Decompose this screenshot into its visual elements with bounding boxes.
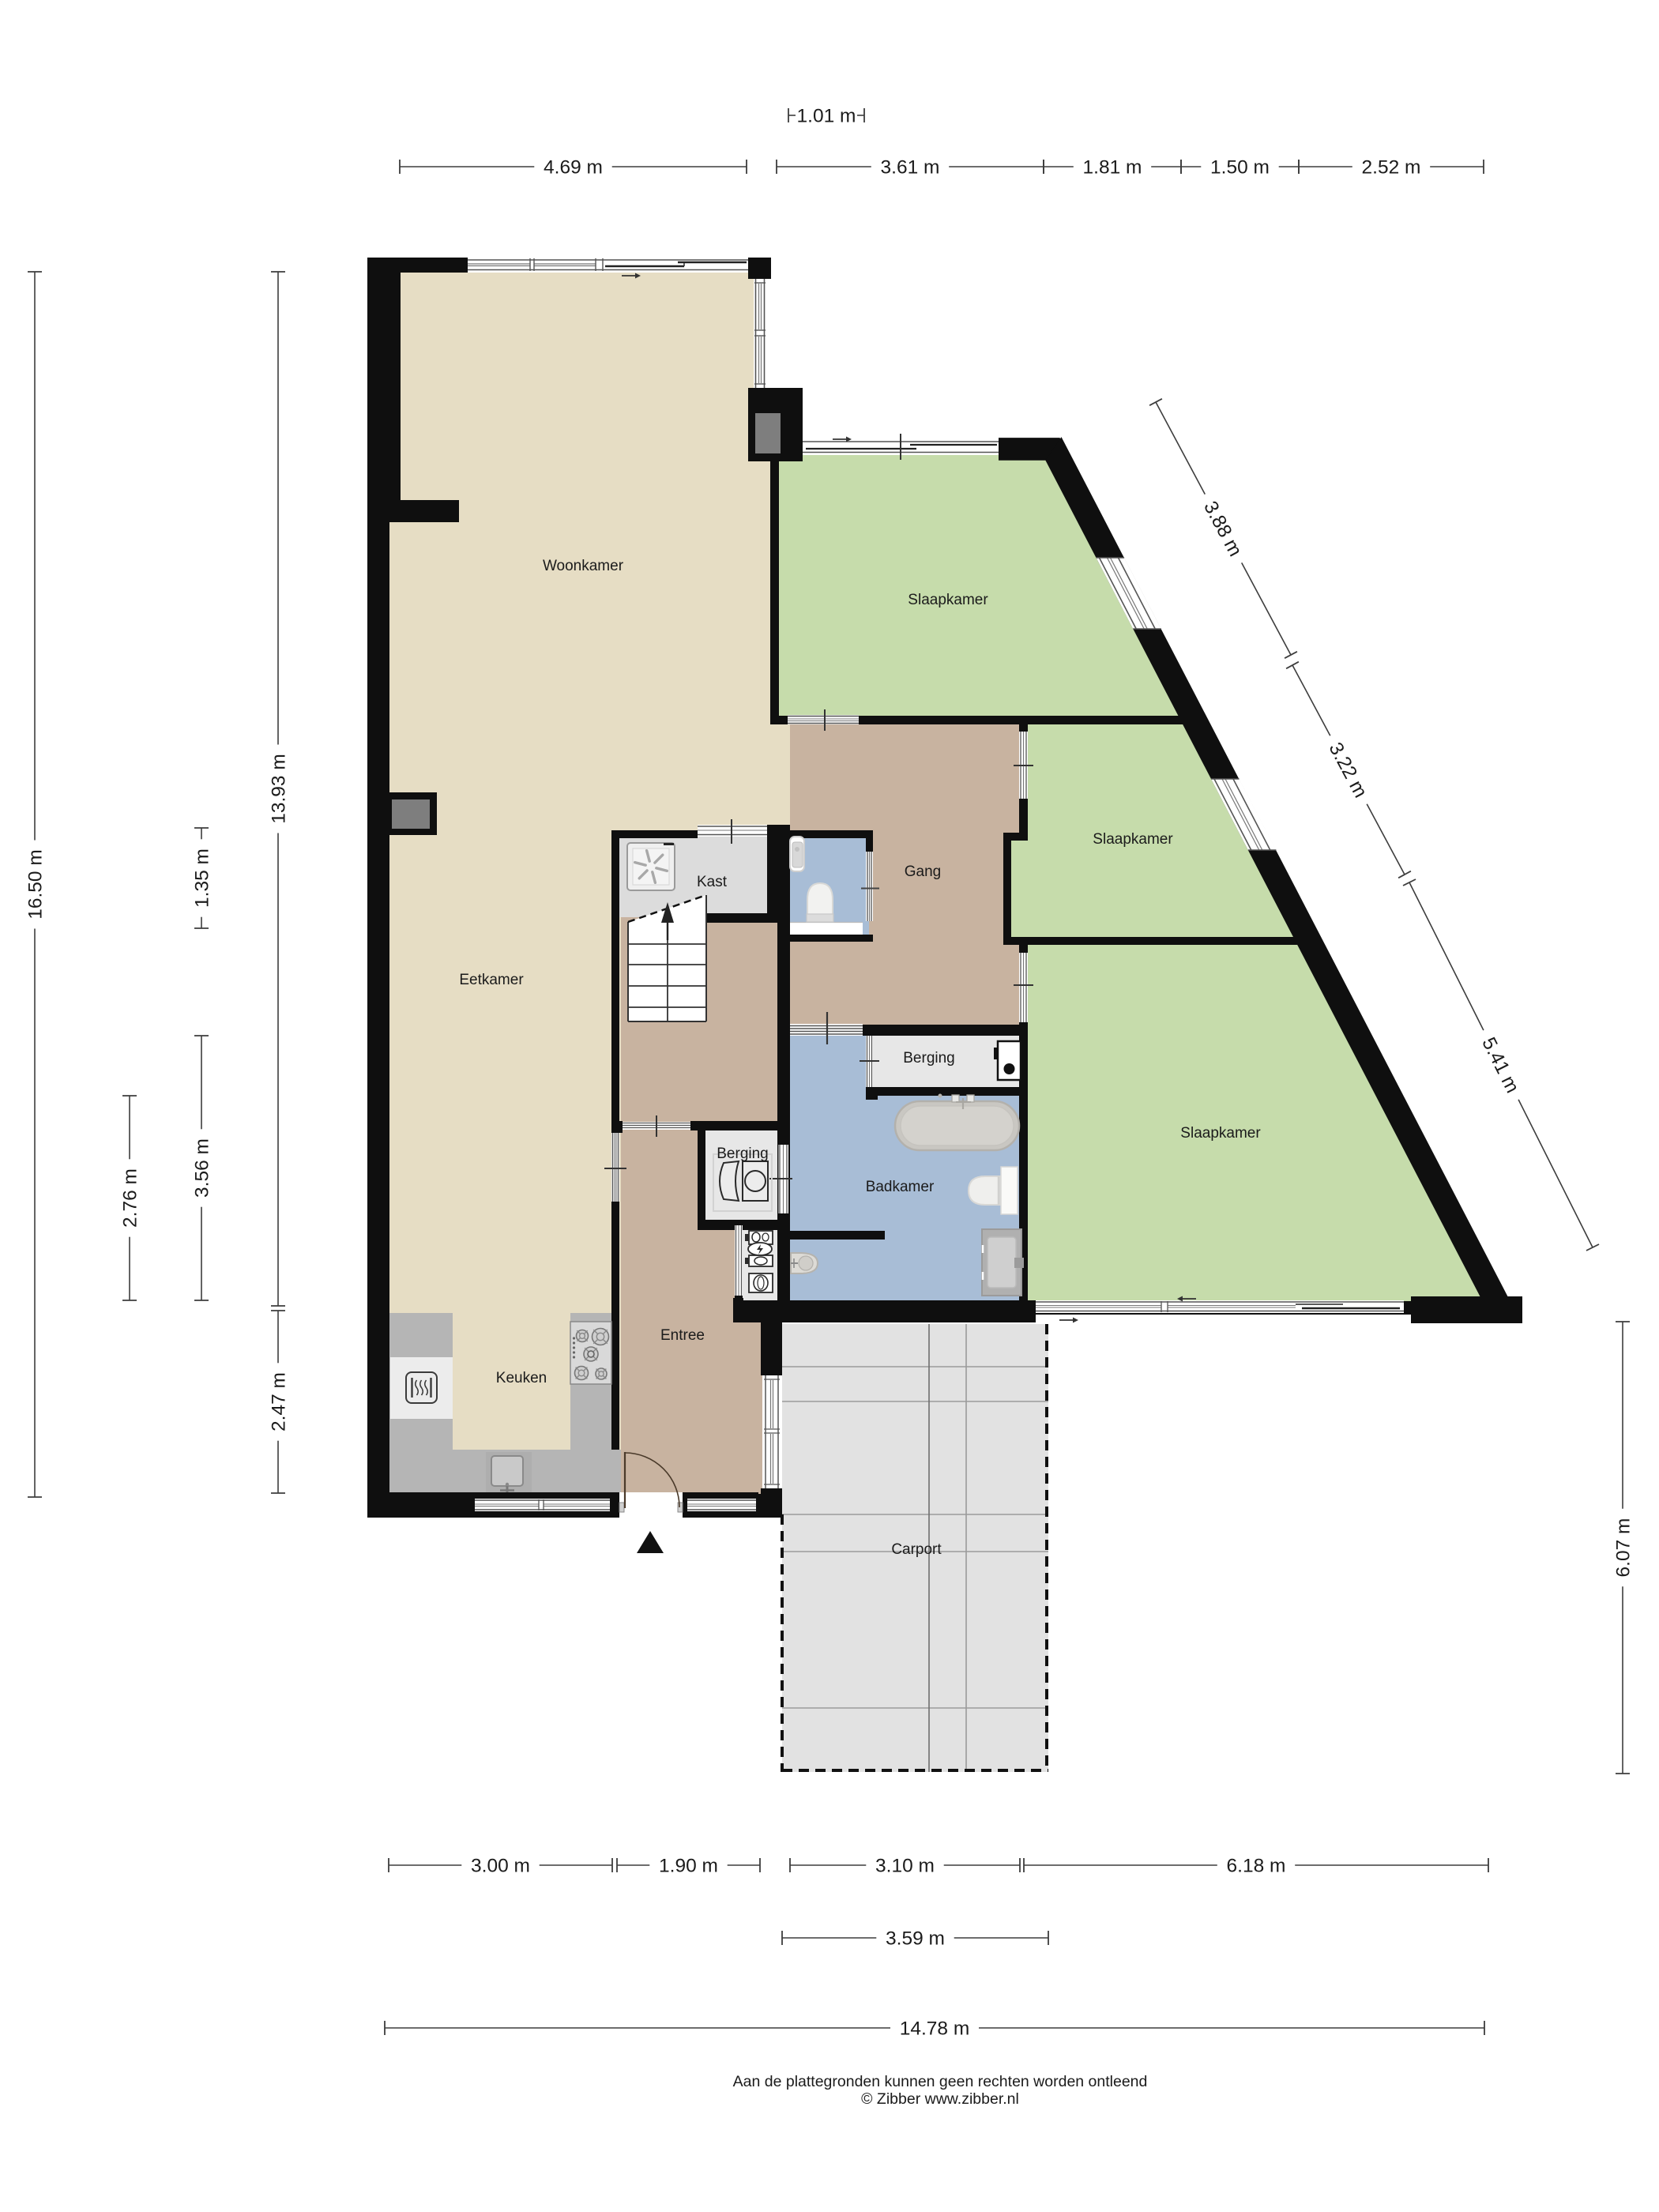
svg-text:Slaapkamer: Slaapkamer [1093, 831, 1173, 848]
svg-text:16.50 m: 16.50 m [24, 849, 46, 920]
svg-text:2.47 m: 2.47 m [268, 1372, 289, 1431]
svg-text:Eetkamer: Eetkamer [459, 972, 524, 988]
svg-text:13.93 m: 13.93 m [268, 754, 289, 824]
svg-text:6.07 m: 6.07 m [1612, 1518, 1634, 1578]
svg-text:3.00 m: 3.00 m [471, 1855, 530, 1876]
svg-text:3.59 m: 3.59 m [886, 1928, 945, 1949]
svg-text:14.78 m: 14.78 m [900, 2018, 970, 2039]
svg-text:© Zibber www.zibber.nl: © Zibber www.zibber.nl [861, 2090, 1019, 2108]
svg-text:Woonkamer: Woonkamer [543, 558, 624, 574]
svg-text:2.52 m: 2.52 m [1362, 156, 1421, 178]
svg-text:3.56 m: 3.56 m [191, 1138, 213, 1198]
svg-text:Badkamer: Badkamer [866, 1179, 935, 1195]
svg-text:Entree: Entree [660, 1327, 705, 1344]
svg-text:Berging: Berging [717, 1145, 769, 1162]
svg-text:Keuken: Keuken [496, 1370, 547, 1386]
svg-text:2.76 m: 2.76 m [119, 1168, 141, 1228]
svg-text:Aan de plattegronden kunnen ge: Aan de plattegronden kunnen geen rechten… [733, 2073, 1148, 2090]
svg-text:6.18 m: 6.18 m [1227, 1855, 1286, 1876]
svg-text:4.69 m: 4.69 m [544, 156, 603, 178]
svg-text:1.50 m: 1.50 m [1210, 156, 1270, 178]
svg-text:Carport: Carport [891, 1541, 942, 1558]
svg-text:Kast: Kast [697, 874, 728, 890]
svg-text:1.01 m: 1.01 m [797, 105, 856, 126]
svg-text:3.61 m: 3.61 m [881, 156, 940, 178]
svg-text:Berging: Berging [903, 1050, 955, 1066]
svg-text:Slaapkamer: Slaapkamer [908, 592, 988, 608]
svg-text:3.10 m: 3.10 m [875, 1855, 935, 1876]
svg-text:1.35 m: 1.35 m [191, 848, 213, 908]
svg-text:Slaapkamer: Slaapkamer [1180, 1125, 1261, 1142]
svg-text:1.90 m: 1.90 m [659, 1855, 718, 1876]
svg-text:1.81 m: 1.81 m [1083, 156, 1142, 178]
svg-text:Gang: Gang [905, 863, 941, 880]
